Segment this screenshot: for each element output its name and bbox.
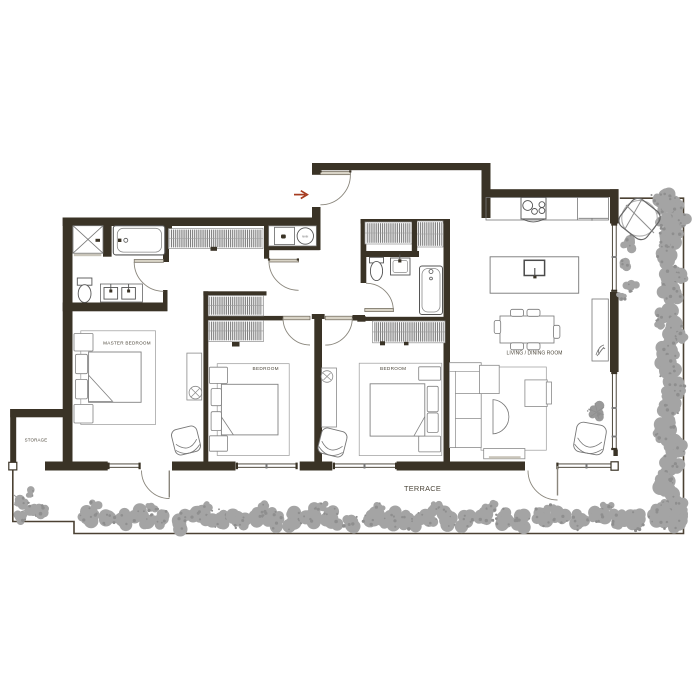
svg-text:MAIN: MAIN: [302, 235, 308, 238]
svg-text:MASTER BEDROOM: MASTER BEDROOM: [103, 340, 151, 345]
svg-text:TERRACE: TERRACE: [404, 484, 441, 493]
svg-text:LIVING / DINING ROOM: LIVING / DINING ROOM: [506, 351, 562, 357]
svg-text:STORAGE: STORAGE: [25, 437, 48, 442]
svg-text:BEDROOM: BEDROOM: [253, 366, 279, 371]
svg-text:BEDROOM: BEDROOM: [380, 366, 406, 371]
